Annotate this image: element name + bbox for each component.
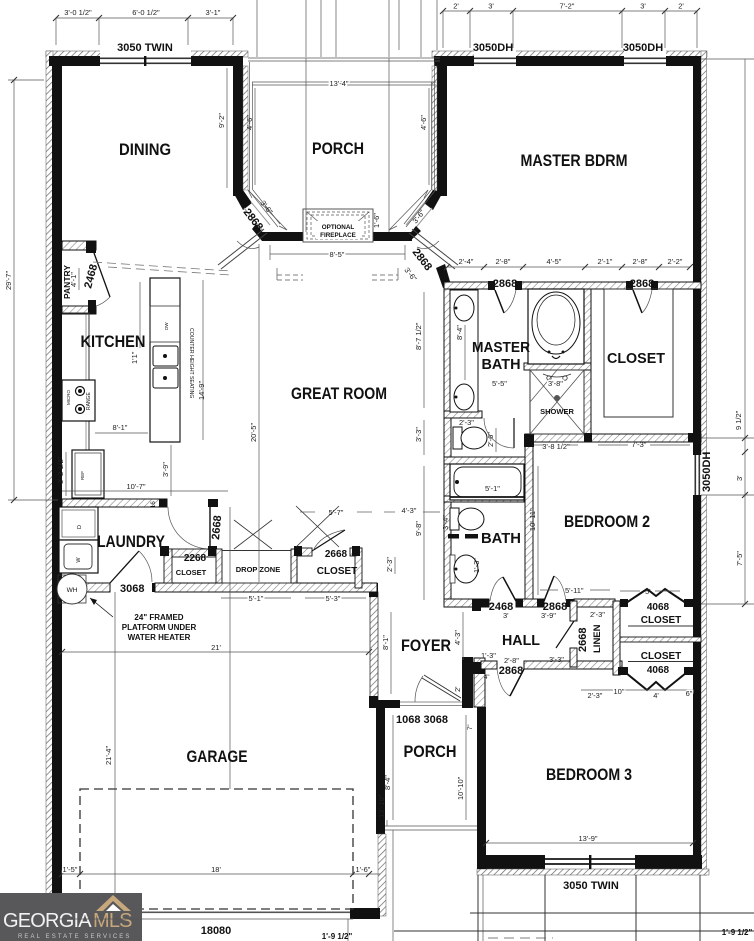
svg-text:6'-0 1/2": 6'-0 1/2" (132, 8, 160, 17)
svg-text:4'-3": 4'-3" (402, 506, 417, 515)
svg-text:10'-10": 10'-10" (456, 776, 465, 800)
svg-text:RANGE: RANGE (86, 392, 92, 410)
svg-text:D: D (77, 525, 83, 529)
svg-text:DW: DW (164, 322, 169, 330)
svg-text:2868: 2868 (499, 665, 523, 677)
svg-text:2'-3": 2'-3" (590, 610, 605, 619)
svg-text:GEORGIA: GEORGIA (3, 910, 92, 932)
svg-text:PLATFORM UNDER: PLATFORM UNDER (122, 623, 197, 632)
svg-text:1'-5": 1'-5" (63, 865, 78, 874)
svg-text:1'-3": 1'-3" (481, 651, 496, 660)
svg-text:3': 3' (488, 2, 494, 11)
svg-text:2'-2": 2'-2" (668, 257, 683, 266)
svg-text:10'-7": 10'-7" (126, 482, 145, 491)
svg-text:21': 21' (211, 643, 221, 652)
svg-text:3'-2 1/2": 3'-2 1/2" (56, 456, 65, 484)
svg-text:8'-4": 8'-4" (383, 775, 392, 790)
svg-text:WH: WH (67, 587, 78, 594)
svg-text:GARAGE: GARAGE (187, 747, 248, 766)
svg-text:3050DH: 3050DH (473, 42, 513, 54)
svg-text:4": 4" (484, 675, 489, 681)
svg-text:COUNTER HEIGHT SEATING: COUNTER HEIGHT SEATING (188, 328, 194, 398)
svg-text:MLS: MLS (93, 910, 132, 932)
svg-text:24" FRAMED: 24" FRAMED (134, 613, 183, 622)
svg-text:CLOSET: CLOSET (641, 651, 682, 662)
svg-text:GREAT ROOM: GREAT ROOM (291, 384, 387, 403)
svg-text:8'-1": 8'-1" (381, 635, 390, 650)
svg-text:7'-3": 7'-3" (632, 440, 647, 449)
svg-text:8'-5": 8'-5" (330, 250, 345, 259)
svg-text:CLOSET: CLOSET (317, 566, 358, 577)
svg-text:4'-3": 4'-3" (453, 630, 462, 645)
svg-text:10'-11": 10'-11" (528, 508, 537, 531)
svg-text:CLOSET: CLOSET (641, 615, 682, 626)
svg-text:2668: 2668 (210, 515, 224, 540)
svg-text:2': 2' (453, 686, 462, 692)
svg-text:6": 6" (686, 689, 693, 698)
svg-text:BEDROOM 2: BEDROOM 2 (564, 512, 650, 531)
svg-text:MICRO: MICRO (66, 390, 71, 405)
svg-text:4': 4' (653, 691, 659, 700)
svg-text:14'-9": 14'-9" (197, 381, 206, 400)
svg-text:2': 2' (678, 2, 684, 11)
svg-text:20'-5": 20'-5" (249, 423, 258, 442)
svg-text:PORCH: PORCH (404, 742, 457, 761)
svg-text:2'-3": 2'-3" (385, 557, 394, 572)
svg-text:21'-4": 21'-4" (104, 746, 113, 765)
svg-text:4068: 4068 (647, 602, 670, 613)
svg-text:2868: 2868 (543, 601, 567, 613)
svg-text:MASTER BDRM: MASTER BDRM (521, 151, 628, 170)
svg-text:3050DH: 3050DH (701, 452, 713, 492)
svg-text:3': 3' (640, 2, 646, 11)
svg-text:9'-2": 9'-2" (217, 113, 226, 128)
svg-text:DINING: DINING (119, 140, 171, 159)
svg-text:3'-3": 3'-3" (414, 427, 423, 442)
svg-text:1'-9 1/2": 1'-9 1/2" (322, 932, 353, 941)
svg-text:LINEN: LINEN (592, 624, 603, 653)
svg-text:7'-5": 7'-5" (735, 551, 744, 566)
svg-text:3'-3": 3'-3" (549, 655, 564, 664)
svg-text:2'-8": 2'-8" (504, 656, 519, 665)
svg-text:1'-3": 1'-3" (472, 558, 481, 573)
svg-text:9'-8": 9'-8" (414, 521, 423, 536)
svg-text:LAUNDRY: LAUNDRY (97, 532, 166, 551)
svg-text:4'-6": 4'-6" (245, 115, 254, 130)
svg-text:3050 TWIN: 3050 TWIN (563, 880, 619, 892)
svg-text:2'-8": 2'-8" (496, 257, 511, 266)
svg-text:5'-11": 5'-11" (565, 586, 584, 595)
svg-text:5'-1": 5'-1" (249, 594, 264, 603)
svg-text:3'-8": 3'-8" (548, 379, 563, 388)
svg-text:18080: 18080 (201, 925, 232, 937)
svg-text:2'-8": 2'-8" (633, 257, 648, 266)
svg-text:BATH: BATH (481, 531, 521, 547)
svg-text:2468: 2468 (489, 601, 513, 613)
svg-text:2668: 2668 (577, 628, 589, 652)
svg-text:WATER HEATER: WATER HEATER (128, 633, 191, 642)
svg-text:2268: 2268 (184, 553, 207, 564)
svg-text:9 1/2": 9 1/2" (734, 410, 743, 430)
svg-text:3'-4": 3'-4" (441, 515, 450, 530)
svg-text:CLOSET: CLOSET (607, 351, 665, 367)
svg-text:MASTER: MASTER (472, 340, 530, 356)
svg-text:7'-2": 7'-2" (560, 2, 575, 11)
svg-text:2868: 2868 (630, 278, 654, 290)
svg-text:5'-7": 5'-7" (329, 508, 344, 517)
svg-text:1068 3068: 1068 3068 (396, 714, 448, 726)
svg-text:29'-7": 29'-7" (4, 271, 13, 290)
svg-text:3': 3' (735, 475, 744, 481)
svg-text:KITCHEN: KITCHEN (81, 332, 146, 351)
svg-text:7": 7" (468, 725, 474, 730)
svg-text:DROP ZONE: DROP ZONE (236, 565, 280, 574)
svg-text:BATH: BATH (482, 357, 521, 373)
svg-text:5'-3": 5'-3" (326, 594, 341, 603)
svg-text:HALL: HALL (502, 633, 540, 649)
svg-text:PANTRY: PANTRY (62, 265, 72, 299)
svg-text:13'-4": 13'-4" (329, 79, 348, 88)
svg-text:3'-9": 3'-9" (161, 462, 170, 477)
svg-text:8'-1": 8'-1" (113, 423, 128, 432)
svg-text:8'-4": 8'-4" (455, 325, 464, 340)
svg-text:W: W (76, 557, 82, 563)
svg-text:2'-1": 2'-1" (598, 257, 613, 266)
svg-text:2': 2' (453, 2, 459, 11)
svg-text:3'-1": 3'-1" (206, 8, 221, 17)
svg-text:2'-6": 2'-6" (486, 432, 495, 447)
svg-text:2'-4": 2'-4" (459, 257, 474, 266)
svg-text:2'-3": 2'-3" (459, 418, 474, 427)
svg-text:4'-5": 4'-5" (547, 257, 562, 266)
svg-text:2'-3": 2'-3" (588, 691, 603, 700)
svg-text:REAL ESTATE SERVICES: REAL ESTATE SERVICES (18, 934, 131, 940)
svg-text:3050 TWIN: 3050 TWIN (117, 42, 173, 54)
svg-text:4'-6": 4'-6" (419, 115, 428, 130)
svg-text:3'-8 1/2": 3'-8 1/2" (542, 442, 570, 451)
svg-text:3'-0 1/2": 3'-0 1/2" (64, 8, 92, 17)
svg-text:CLOSET: CLOSET (176, 568, 207, 577)
svg-text:2668: 2668 (325, 549, 348, 560)
svg-text:10": 10" (613, 687, 624, 696)
svg-text:FOYER: FOYER (401, 636, 451, 655)
svg-text:13'-10": 13'-10" (377, 794, 386, 818)
svg-text:3050DH: 3050DH (623, 42, 663, 54)
svg-text:2868: 2868 (493, 278, 517, 290)
svg-text:5'-5": 5'-5" (492, 379, 507, 388)
svg-text:13'-9": 13'-9" (578, 834, 597, 843)
svg-text:OPTIONAL: OPTIONAL (322, 224, 355, 231)
svg-text:1'-9 1/2": 1'-9 1/2" (722, 928, 753, 937)
svg-text:18': 18' (211, 865, 221, 874)
svg-text:16: 16 (151, 501, 157, 508)
svg-text:PORCH: PORCH (312, 139, 364, 158)
svg-text:4068: 4068 (647, 665, 670, 676)
svg-text:3068: 3068 (120, 583, 144, 595)
svg-text:8'-7 1/2": 8'-7 1/2" (414, 322, 423, 350)
svg-text:5'-1": 5'-1" (485, 484, 500, 493)
svg-text:5': 5' (645, 587, 651, 596)
svg-text:SHOWER: SHOWER (540, 407, 574, 416)
svg-text:REF: REF (80, 471, 85, 480)
svg-text:BEDROOM 3: BEDROOM 3 (546, 765, 632, 784)
svg-text:FIREPLACE: FIREPLACE (320, 232, 356, 239)
svg-text:1'-6": 1'-6" (356, 865, 371, 874)
svg-text:1'1": 1'1" (130, 351, 139, 364)
